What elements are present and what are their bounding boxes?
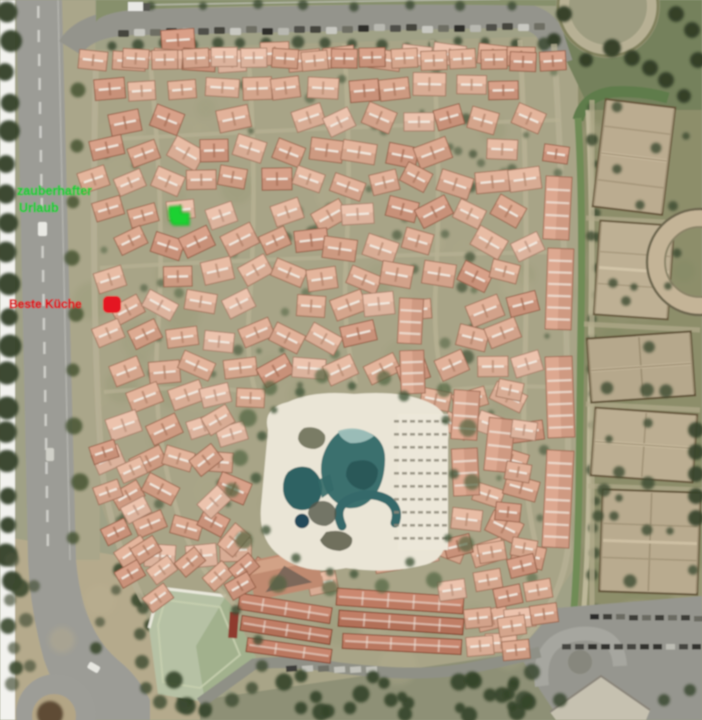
svg-text:zauberhafter: zauberhafter [17, 184, 92, 198]
svg-text:Urlaub: Urlaub [19, 201, 59, 215]
svg-text:Beste Küche: Beste Küche [9, 297, 82, 311]
